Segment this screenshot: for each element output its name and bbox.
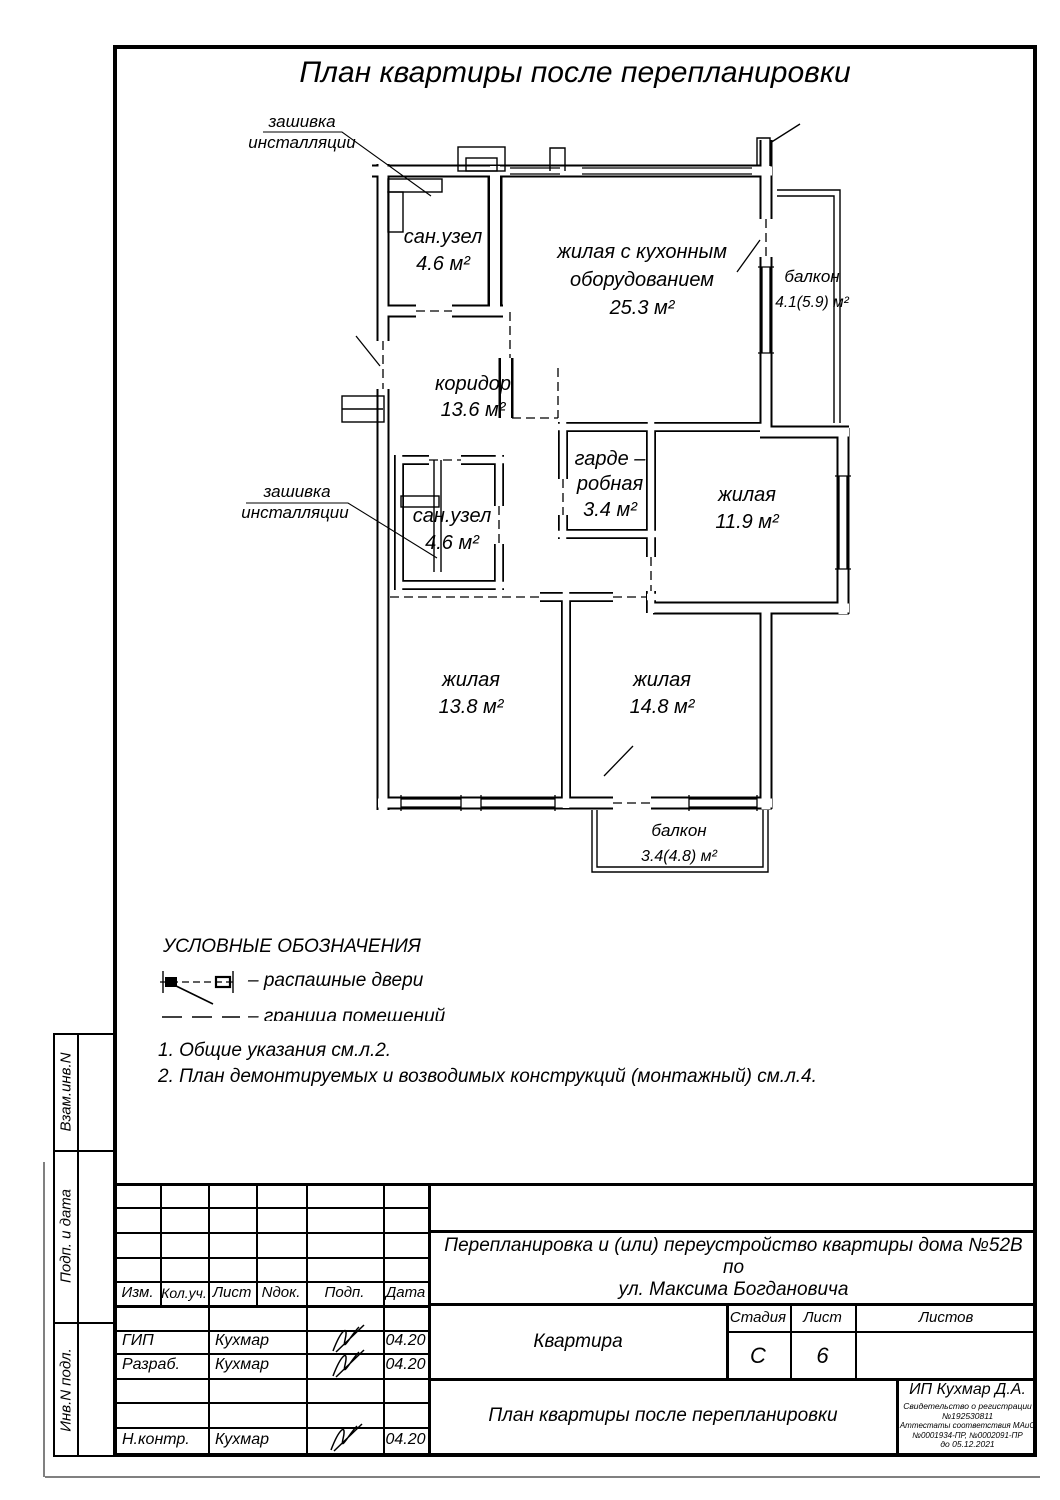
legend-item-boundary-clip: – граница помещений [248, 1006, 478, 1021]
date-nkontr: 04.20 [383, 1427, 428, 1453]
room-labels: сан.узел 4.6 м² жилая с кухонным оборудо… [404, 226, 850, 865]
callout-left-line2: инсталляции [241, 503, 349, 522]
header-podp: Подп. [306, 1281, 383, 1305]
callout-top-line1: зашивка [267, 112, 335, 131]
room-san2-area: 4.6 м² [425, 532, 480, 554]
room-wardrobe-name1: гарде – [575, 448, 647, 470]
room-balcony1-name: балкон [784, 267, 840, 286]
room-balcony2-area: 3.4(4.8) м² [641, 848, 718, 865]
role-nkontr: Н.контр. [115, 1427, 208, 1453]
name-nkontr: Кухмар [208, 1427, 306, 1453]
header-kol: Кол.уч. [160, 1281, 208, 1305]
role-razrab: Разраб. [115, 1353, 208, 1378]
room-balcony1-area: 4.1(5.9) м² [775, 294, 849, 311]
legend-item-boundary: – граница помещений [248, 1006, 445, 1021]
doc-title-line1: Перепланировка и (или) переустройство кв… [432, 1235, 1035, 1279]
stage-value: С [726, 1331, 790, 1380]
titleblock-line [113, 1183, 1037, 1186]
name-gip: Кухмар [208, 1330, 306, 1353]
name-razrab: Кухмар [208, 1353, 306, 1378]
room-living138-name: жилая [441, 669, 500, 691]
object-name: Квартира [430, 1303, 726, 1380]
room-kitchen-name1: жилая с кухонным [556, 241, 727, 263]
room-corridor-area: 13.6 м² [441, 399, 507, 421]
company-block: ИП Кухмар Д.А. Свидетельство о регистрац… [898, 1378, 1037, 1453]
company-cert3: до 05.12.2021 [940, 1440, 994, 1450]
sheets-label: Листов [855, 1305, 1037, 1331]
legend-item-doors: – распашные двери [248, 970, 423, 992]
room-balcony2-name: балкон [651, 821, 707, 840]
header-ndok: Nдок. [256, 1281, 306, 1305]
header-data: Дата [383, 1281, 428, 1305]
date-gip: 04.20 [383, 1330, 428, 1353]
room-living119-area: 11.9 м² [715, 511, 780, 533]
room-wardrobe-area: 3.4 м² [583, 499, 638, 521]
sidebar-label-inv: Инв.N подл. [58, 1348, 75, 1432]
header-list: Лист [208, 1281, 256, 1305]
sheet-label: Лист [790, 1305, 855, 1331]
sidebar-cell-vzam: Взам.инв.N [53, 1033, 79, 1150]
stage-label: Стадия [726, 1305, 790, 1331]
company-cert2: Аттестаты соответствия МАиС №0001934-ПР,… [898, 1421, 1037, 1439]
room-living138-area: 13.8 м² [439, 696, 505, 718]
sidebar-cell-podp: Подп. и дата [53, 1150, 79, 1322]
note-2: 2. План демонтируемых и возводимых конст… [158, 1066, 817, 1088]
callout-left: зашивка инсталляции [241, 482, 349, 522]
note-1: 1. Общие указания см.л.2. [158, 1040, 391, 1062]
sidebar-label-podp: Подп. и дата [58, 1189, 75, 1283]
date-razrab: 04.20 [383, 1353, 428, 1378]
room-kitchen-name2: оборудованием [570, 269, 714, 291]
role-gip: ГИП [115, 1330, 208, 1353]
legend-title: УСЛОВНЫЕ ОБОЗНАЧЕНИЯ [163, 936, 421, 958]
company-cert1: Свидетельство о регистрации №192530811 [898, 1402, 1037, 1422]
callout-top-line2: инсталляции [248, 133, 356, 152]
room-san2-name: сан.узел [413, 505, 492, 527]
sheet-value: 6 [790, 1331, 855, 1380]
sidebar-cell-inv: Инв.N подл. [53, 1322, 79, 1457]
room-living148-area: 14.8 м² [630, 696, 696, 718]
room-corridor-name: коридор [435, 373, 511, 395]
callout-left-line1: зашивка [262, 482, 330, 501]
legend-door-symbol [160, 971, 237, 1004]
room-living148-name: жилая [632, 669, 691, 691]
drawing-title: План квартиры после перепланировки [430, 1378, 896, 1453]
drawing-sheet: План квартиры после перепланировки [0, 0, 1060, 1500]
titleblock-line [306, 1183, 308, 1453]
company-name: ИП Кухмар Д.А. [909, 1381, 1026, 1399]
room-living119-name: жилая [717, 484, 776, 506]
sheets-value [855, 1331, 1037, 1380]
header-izm: Изм. [115, 1281, 160, 1305]
doc-title-line2: ул. Максима Богдановича [619, 1279, 849, 1301]
window-bays [458, 124, 800, 171]
room-san1-area: 4.6 м² [416, 253, 471, 275]
signature-marks [331, 1325, 364, 1451]
titleblock-line [383, 1183, 385, 1453]
sidebar-label-vzam: Взам.инв.N [58, 1052, 75, 1131]
titleblock-line [208, 1183, 210, 1453]
room-wardrobe-name2: робная [576, 473, 644, 495]
room-san1-name: сан.узел [404, 226, 483, 248]
doc-title: Перепланировка и (или) переустройство кв… [432, 1233, 1035, 1303]
room-kitchen-area: 25.3 м² [609, 297, 676, 319]
